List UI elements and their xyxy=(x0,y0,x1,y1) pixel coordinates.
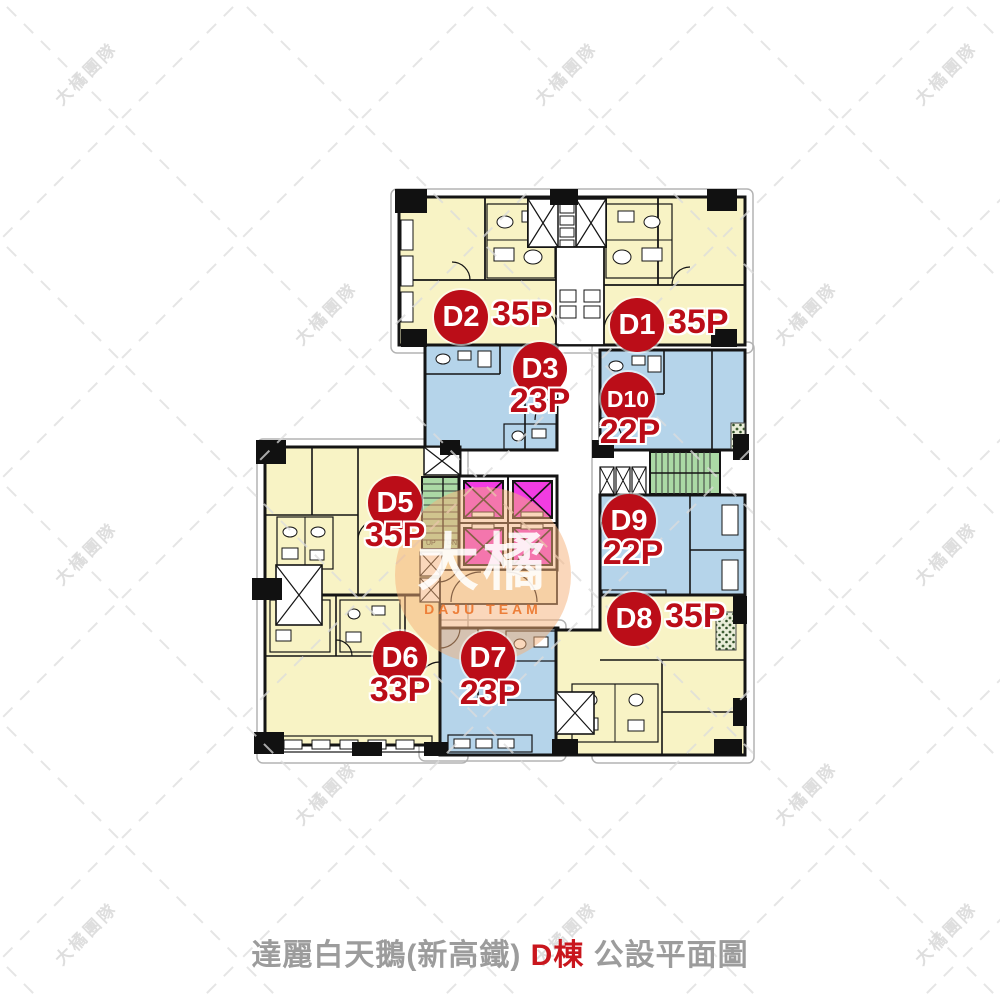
unit-id-badge: D1 xyxy=(610,298,664,352)
stair-down-label: DN xyxy=(447,540,457,547)
title-plan-type: 公設平面圖 xyxy=(584,939,748,972)
shafts-near-stair-east xyxy=(600,467,646,494)
title-project-name: 達麗白天鵝(新高鐵) xyxy=(251,939,530,972)
top-corridor xyxy=(556,247,604,345)
unit-area-d5: 35P xyxy=(350,516,440,555)
unit-badge-d2: D2 xyxy=(434,290,488,344)
floor-plan: UP DN xyxy=(0,0,1000,1000)
left-shaft xyxy=(276,565,322,625)
unit-area-d3: 23P xyxy=(495,382,585,421)
elevator-bank xyxy=(459,476,557,570)
unit-area-d2: 35P xyxy=(492,295,553,334)
title-building-name: D棟 xyxy=(531,939,585,972)
top-shaft xyxy=(528,199,606,249)
unit-id-badge: D2 xyxy=(434,290,488,344)
unit-badge-d8: D8 xyxy=(607,592,661,646)
unit-id-badge: D8 xyxy=(607,592,661,646)
mid-bottom-shaft xyxy=(556,692,594,734)
unit-area-d10: 22P xyxy=(585,413,675,452)
stair-east xyxy=(650,452,720,494)
unit-area-d8: 35P xyxy=(665,597,726,636)
unit-area-d9: 22P xyxy=(588,534,678,573)
unit-badge-d1: D1 xyxy=(610,298,664,352)
floorplan-page: UP DN xyxy=(0,0,1000,1000)
unit-area-d7: 23P xyxy=(445,674,535,713)
unit-area-d6: 33P xyxy=(355,671,445,710)
unit-area-d1: 35P xyxy=(668,303,729,342)
page-title: 達麗白天鵝(新高鐵) D棟 公設平面圖 xyxy=(0,930,1000,974)
lobby xyxy=(440,570,557,604)
